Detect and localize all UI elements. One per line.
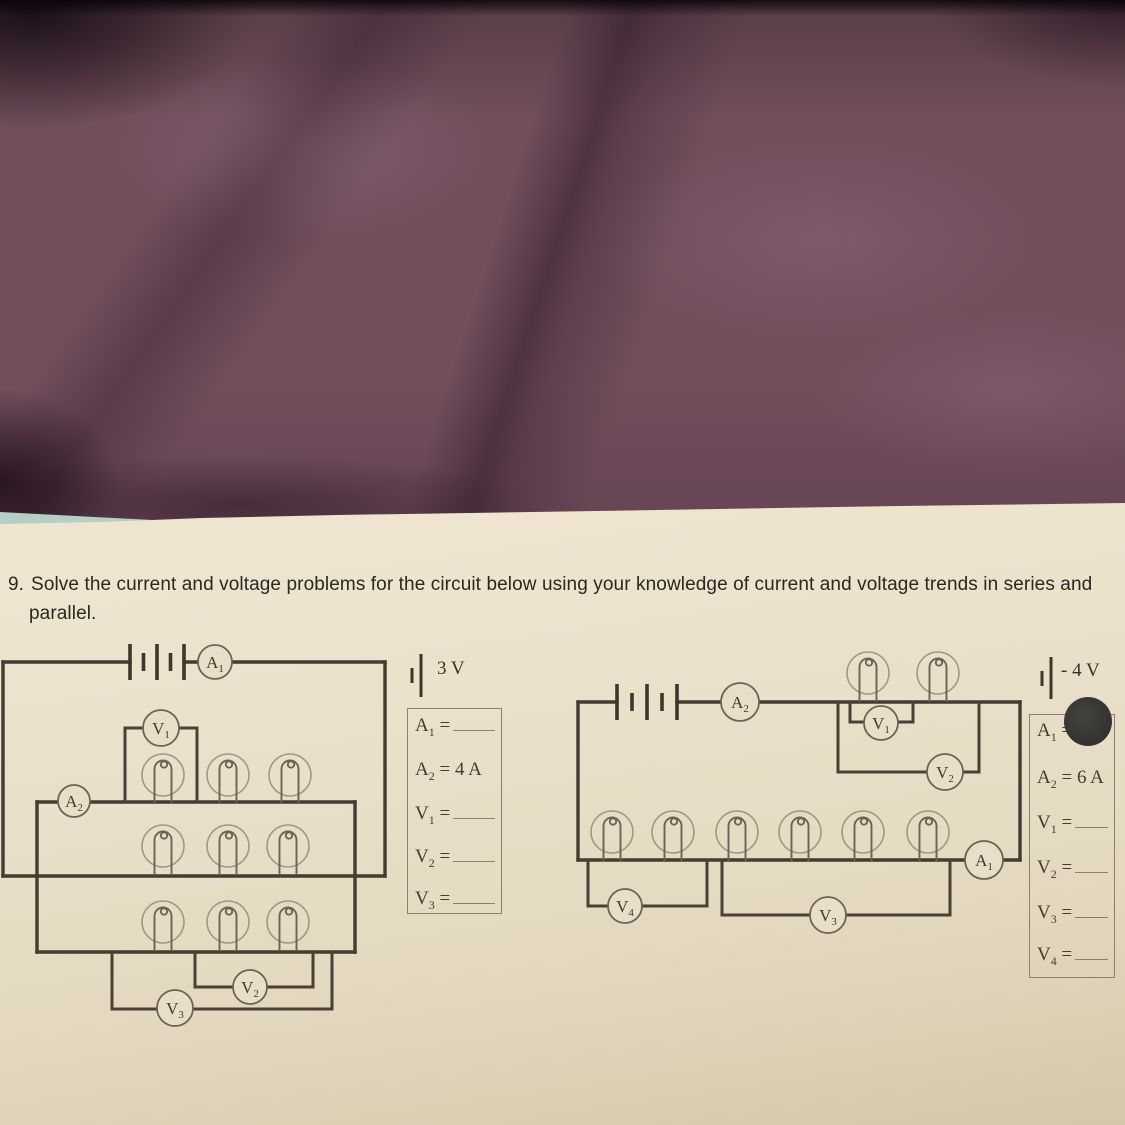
- quantity-symbol: V: [1037, 944, 1051, 965]
- equals-sign: =: [439, 888, 450, 909]
- answer-row: V1 =: [415, 803, 495, 828]
- photo-of-worksheet: 9.Solve the current and voltage problems…: [0, 0, 1125, 1125]
- answer-row: V4 =: [1037, 944, 1108, 969]
- equals-sign: =: [439, 715, 450, 736]
- battery-voltage-label: - 4 V: [1061, 660, 1100, 682]
- quantity-subscript: 2: [1051, 777, 1057, 791]
- answer-row: A2 = 6 A: [1037, 767, 1104, 792]
- answer-row: V2 =: [415, 846, 495, 871]
- quantity-symbol: V: [415, 803, 429, 824]
- quantity-symbol: V: [415, 888, 429, 909]
- quantity-symbol: A: [415, 759, 429, 780]
- bedsheet-fabric-background: [0, 0, 1125, 532]
- answer-blank: [453, 716, 495, 731]
- quantity-subscript: 1: [429, 813, 435, 827]
- quantity-subscript: 4: [1051, 954, 1057, 968]
- equals-sign: =: [1061, 767, 1072, 788]
- left-answer-box: A1 = A2 = 4 A V1 = V2 = V3 =: [407, 708, 502, 914]
- quantity-symbol: A: [1037, 767, 1051, 788]
- battery-voltage-label: 3 V: [437, 658, 465, 680]
- question-line1-text: Solve the current and voltage problems f…: [31, 574, 1092, 595]
- answer-blank: [453, 804, 495, 819]
- quantity-symbol: A: [415, 715, 429, 736]
- quantity-subscript: 2: [1051, 867, 1057, 881]
- question-text-line1: 9.Solve the current and voltage problems…: [8, 574, 1092, 596]
- quantity-symbol: V: [1037, 812, 1051, 833]
- equals-sign: =: [439, 759, 450, 780]
- answer-blank: [453, 889, 495, 904]
- ink-dot: [1064, 697, 1112, 746]
- answer-blank: [453, 847, 495, 862]
- equals-sign: =: [439, 846, 450, 867]
- equals-sign: =: [1061, 944, 1072, 965]
- answer-blank: [1075, 813, 1108, 828]
- answer-row: V1 =: [1037, 812, 1108, 837]
- quantity-symbol: V: [1037, 902, 1051, 923]
- answer-value: 4 A: [455, 759, 482, 780]
- question-text-line2: parallel.: [29, 603, 96, 625]
- answer-row: V2 =: [1037, 857, 1108, 882]
- quantity-subscript: 1: [1051, 730, 1057, 744]
- answer-value: 6 A: [1077, 767, 1104, 788]
- quantity-subscript: 1: [429, 725, 435, 739]
- quantity-symbol: V: [415, 846, 429, 867]
- equals-sign: =: [1061, 812, 1072, 833]
- quantity-symbol: V: [1037, 857, 1051, 878]
- answer-row: A2 = 4 A: [415, 759, 482, 784]
- quantity-subscript: 3: [429, 898, 435, 912]
- equals-sign: =: [1061, 857, 1072, 878]
- answer-blank: [1075, 903, 1108, 918]
- quantity-subscript: 2: [429, 856, 435, 870]
- right-answer-box: A1 = A2 = 6 A V1 = V2 = V3 = V4 =: [1029, 714, 1115, 978]
- equals-sign: =: [439, 803, 450, 824]
- answer-row: A1 =: [415, 715, 495, 740]
- quantity-subscript: 1: [1051, 822, 1057, 836]
- quantity-symbol: A: [1037, 720, 1051, 741]
- answer-row: V3 =: [1037, 902, 1108, 927]
- quantity-subscript: 3: [1051, 912, 1057, 926]
- question-number: 9.: [8, 574, 24, 595]
- answer-blank: [1075, 858, 1108, 873]
- equals-sign: =: [1061, 902, 1072, 923]
- answer-blank: [1075, 945, 1108, 960]
- answer-row: V3 =: [415, 888, 495, 913]
- quantity-subscript: 2: [429, 769, 435, 783]
